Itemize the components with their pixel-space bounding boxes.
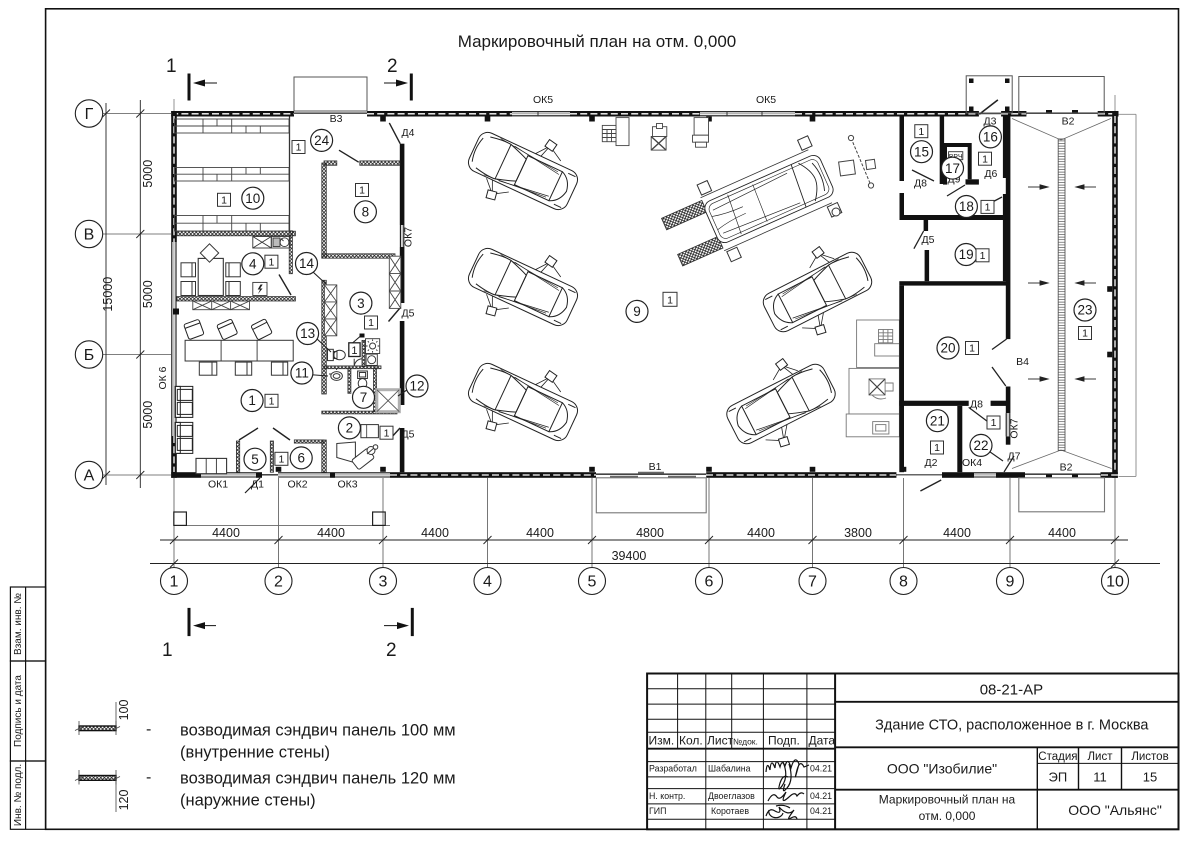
svg-text:1: 1 [918, 126, 924, 138]
svg-text:В2: В2 [1060, 462, 1073, 474]
svg-text:Д4: Д4 [402, 127, 415, 139]
svg-text:В2: В2 [1062, 116, 1075, 128]
svg-text:5: 5 [251, 452, 259, 467]
svg-text:ОК1: ОК1 [208, 479, 228, 491]
svg-text:А: А [84, 468, 95, 485]
svg-text:20: 20 [940, 341, 955, 356]
svg-text:Д8: Д8 [970, 399, 983, 411]
svg-text:Подпись и дата: Подпись и дата [13, 675, 24, 747]
svg-text:9: 9 [1006, 574, 1015, 591]
svg-text:2: 2 [346, 421, 354, 436]
svg-text:Маркировочный план на: Маркировочный план на [879, 793, 1016, 807]
svg-text:39400: 39400 [612, 549, 647, 563]
svg-text:4: 4 [249, 257, 257, 272]
svg-text:4400: 4400 [317, 526, 345, 540]
svg-text:1: 1 [162, 640, 173, 661]
svg-text:3: 3 [357, 296, 365, 311]
svg-text:Д2: Д2 [925, 457, 938, 469]
svg-text:3: 3 [379, 574, 388, 591]
svg-text:Кол.: Кол. [679, 734, 703, 748]
svg-text:ГИП: ГИП [649, 806, 666, 816]
svg-text:2: 2 [274, 574, 283, 591]
svg-text:В3: В3 [330, 113, 343, 125]
svg-text:ООО "Изобилие": ООО "Изобилие" [887, 761, 997, 777]
svg-text:21: 21 [930, 413, 945, 428]
svg-text:-: - [146, 769, 151, 786]
svg-text:15000: 15000 [101, 277, 115, 312]
svg-text:Д8: Д8 [914, 178, 927, 190]
svg-text:17: 17 [945, 161, 960, 176]
svg-text:Инв. № подл.: Инв. № подл. [13, 764, 24, 826]
svg-text:15: 15 [914, 144, 929, 159]
svg-text:5000: 5000 [141, 160, 155, 188]
svg-text:04.21: 04.21 [810, 806, 832, 816]
svg-text:Взам. инв. №: Взам. инв. № [13, 593, 24, 655]
svg-text:04.21: 04.21 [810, 791, 832, 801]
svg-text:1: 1 [980, 250, 986, 262]
svg-text:Подп.: Подп. [768, 734, 800, 748]
svg-text:Лист: Лист [707, 734, 734, 748]
svg-text:Г: Г [85, 106, 94, 123]
svg-text:Двоеглазов: Двоеглазов [708, 791, 755, 801]
svg-text:9: 9 [633, 304, 641, 319]
svg-text:10: 10 [1106, 574, 1124, 591]
svg-text:Д7: Д7 [1008, 451, 1021, 463]
svg-text:4400: 4400 [943, 526, 971, 540]
svg-text:1: 1 [1082, 328, 1088, 340]
svg-text:Д5: Д5 [922, 234, 935, 246]
svg-text:Н. контр.: Н. контр. [649, 791, 685, 801]
svg-text:1: 1 [269, 396, 275, 408]
svg-text:№док.: №док. [733, 737, 758, 747]
svg-text:В4: В4 [1016, 356, 1029, 368]
svg-text:(наружние стены): (наружние стены) [180, 792, 316, 810]
svg-text:8: 8 [362, 205, 370, 220]
svg-text:Д6: Д6 [984, 168, 997, 180]
svg-text:ОК5: ОК5 [533, 94, 553, 106]
svg-text:6: 6 [705, 574, 714, 591]
svg-text:4400: 4400 [747, 526, 775, 540]
svg-text:-: - [146, 721, 151, 738]
svg-text:(внутренние стены): (внутренние стены) [180, 744, 330, 762]
svg-text:Лист: Лист [1088, 751, 1114, 763]
svg-text:Листов: Листов [1131, 751, 1168, 763]
svg-text:04.21: 04.21 [810, 764, 832, 774]
svg-text:ОК4: ОК4 [962, 457, 982, 469]
svg-text:Шабалина: Шабалина [708, 764, 751, 774]
svg-text:100: 100 [117, 700, 131, 721]
svg-text:ЭП: ЭП [1049, 770, 1068, 785]
svg-text:В: В [84, 227, 95, 244]
svg-text:7: 7 [360, 390, 368, 405]
svg-text:1: 1 [368, 317, 374, 329]
svg-text:11: 11 [1093, 770, 1107, 785]
svg-text:6: 6 [297, 451, 305, 466]
svg-text:Дата: Дата [809, 734, 836, 748]
svg-text:14: 14 [299, 256, 315, 271]
svg-text:120: 120 [117, 790, 131, 811]
svg-text:1: 1 [969, 343, 975, 355]
svg-text:возводимая сэндвич панель 100: возводимая сэндвич панель 100 мм [180, 722, 456, 740]
svg-text:Маркировочный план на отм. 0,0: Маркировочный план на отм. 0,000 [458, 32, 737, 51]
svg-text:1: 1 [384, 427, 390, 439]
svg-text:22: 22 [973, 438, 988, 453]
svg-text:1: 1 [248, 393, 256, 408]
svg-text:1: 1 [934, 442, 940, 454]
svg-text:4: 4 [483, 574, 492, 591]
svg-text:1: 1 [985, 202, 991, 214]
svg-text:2: 2 [386, 640, 397, 661]
svg-text:1: 1 [296, 142, 302, 154]
svg-text:ОК2: ОК2 [287, 479, 307, 491]
svg-text:13: 13 [300, 326, 315, 341]
svg-text:возводимая сэндвич панель 120: возводимая сэндвич панель 120 мм [180, 770, 456, 788]
svg-text:1: 1 [982, 153, 988, 165]
svg-text:Изм.: Изм. [649, 734, 675, 748]
svg-text:ОК5: ОК5 [756, 94, 776, 106]
svg-text:8: 8 [899, 574, 908, 591]
svg-text:1: 1 [991, 417, 997, 429]
svg-text:4800: 4800 [636, 526, 664, 540]
svg-text:19: 19 [959, 247, 974, 262]
svg-text:10: 10 [245, 191, 260, 206]
svg-text:15: 15 [1143, 770, 1157, 785]
svg-text:Д5: Д5 [402, 308, 415, 320]
svg-text:4400: 4400 [212, 526, 240, 540]
svg-text:2: 2 [387, 56, 398, 77]
svg-text:23: 23 [1077, 303, 1092, 318]
svg-text:5: 5 [588, 574, 597, 591]
svg-text:4400: 4400 [1048, 526, 1076, 540]
svg-text:Здание СТО, расположенное в г.: Здание СТО, расположенное в г. Москва [875, 718, 1149, 734]
svg-text:4400: 4400 [526, 526, 554, 540]
svg-text:ОК 6: ОК 6 [157, 366, 169, 389]
svg-text:4400: 4400 [421, 526, 449, 540]
svg-text:12: 12 [409, 379, 424, 394]
svg-text:Д5: Д5 [402, 429, 415, 441]
svg-text:7: 7 [808, 574, 817, 591]
svg-text:отм. 0,000: отм. 0,000 [919, 809, 976, 823]
svg-text:16: 16 [983, 130, 998, 145]
svg-text:11: 11 [295, 366, 309, 381]
svg-text:Разработал: Разработал [649, 764, 697, 774]
svg-text:1: 1 [268, 256, 274, 268]
svg-text:Коротаев: Коротаев [711, 806, 749, 816]
svg-text:ООО "Альянс": ООО "Альянс" [1068, 802, 1162, 818]
svg-text:18: 18 [959, 199, 974, 214]
svg-text:3800: 3800 [844, 526, 872, 540]
svg-text:1: 1 [667, 294, 673, 306]
svg-text:1: 1 [351, 345, 357, 357]
svg-text:24: 24 [314, 133, 330, 148]
svg-text:В1: В1 [649, 461, 662, 473]
svg-text:1: 1 [359, 185, 365, 197]
svg-text:Б: Б [84, 347, 95, 364]
svg-text:Стадия: Стадия [1038, 751, 1077, 763]
svg-text:1: 1 [166, 56, 177, 77]
svg-text:1: 1 [278, 454, 284, 466]
svg-text:5000: 5000 [141, 401, 155, 429]
svg-text:1: 1 [170, 574, 179, 591]
svg-text:1: 1 [221, 195, 227, 207]
svg-text:ОК3: ОК3 [337, 479, 357, 491]
svg-text:08-21-АР: 08-21-АР [980, 682, 1043, 699]
svg-text:5000: 5000 [141, 280, 155, 308]
